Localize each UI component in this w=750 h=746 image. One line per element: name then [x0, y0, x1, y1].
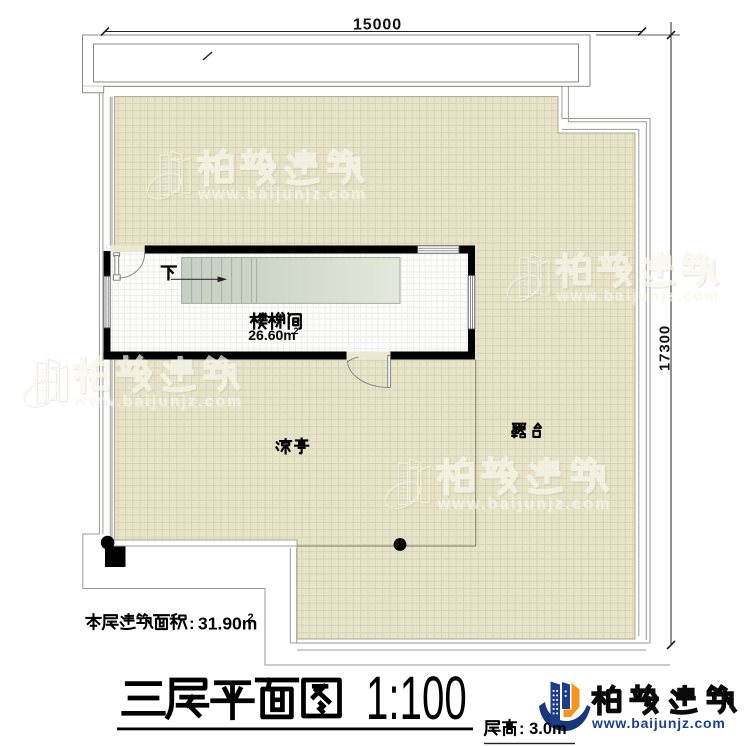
- svg-text:17300: 17300: [656, 325, 673, 371]
- svg-text:: 3.0m: : 3.0m: [519, 720, 567, 738]
- svg-text:2: 2: [294, 326, 299, 336]
- svg-text:26.60m: 26.60m: [248, 327, 295, 343]
- svg-text::: :: [189, 614, 195, 633]
- svg-text:2: 2: [248, 612, 254, 624]
- svg-text:1:100: 1:100: [366, 664, 467, 732]
- svg-text:15000: 15000: [353, 17, 402, 34]
- svg-text:www.baijunjz.com: www.baijunjz.com: [591, 715, 726, 731]
